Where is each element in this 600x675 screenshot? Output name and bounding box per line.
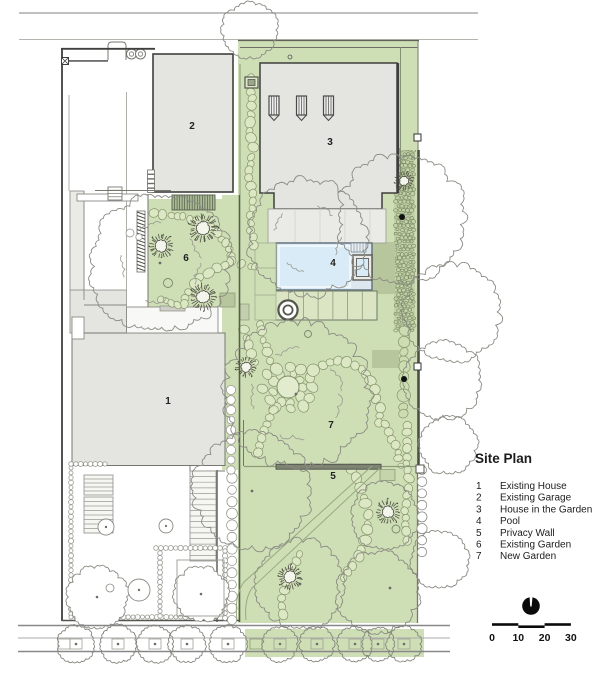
svg-text:3: 3 xyxy=(476,504,482,515)
svg-text:1: 1 xyxy=(476,481,482,492)
svg-text:4: 4 xyxy=(330,258,336,269)
svg-text:Existing Garage: Existing Garage xyxy=(500,493,572,504)
svg-text:New Garden: New Garden xyxy=(500,551,556,562)
svg-text:4: 4 xyxy=(476,516,482,527)
svg-text:2: 2 xyxy=(476,493,482,504)
svg-text:6: 6 xyxy=(476,540,482,551)
svg-text:5: 5 xyxy=(330,471,336,482)
svg-text:6: 6 xyxy=(183,253,189,264)
svg-text:2: 2 xyxy=(189,121,195,132)
svg-text:Pool: Pool xyxy=(500,516,520,527)
svg-text:Site Plan: Site Plan xyxy=(475,451,532,466)
svg-text:5: 5 xyxy=(476,528,482,539)
svg-text:20: 20 xyxy=(539,632,551,644)
svg-text:7: 7 xyxy=(476,551,482,562)
svg-text:7: 7 xyxy=(328,420,334,431)
svg-text:0: 0 xyxy=(489,632,495,644)
svg-text:10: 10 xyxy=(512,632,524,644)
svg-text:Existing House: Existing House xyxy=(500,481,567,492)
svg-text:1: 1 xyxy=(165,396,171,407)
svg-text:3: 3 xyxy=(327,137,333,148)
svg-text:Existing Garden: Existing Garden xyxy=(500,540,571,551)
svg-text:30: 30 xyxy=(565,632,577,644)
svg-text:Privacy Wall: Privacy Wall xyxy=(500,528,555,539)
svg-text:House in the Garden: House in the Garden xyxy=(500,504,592,515)
